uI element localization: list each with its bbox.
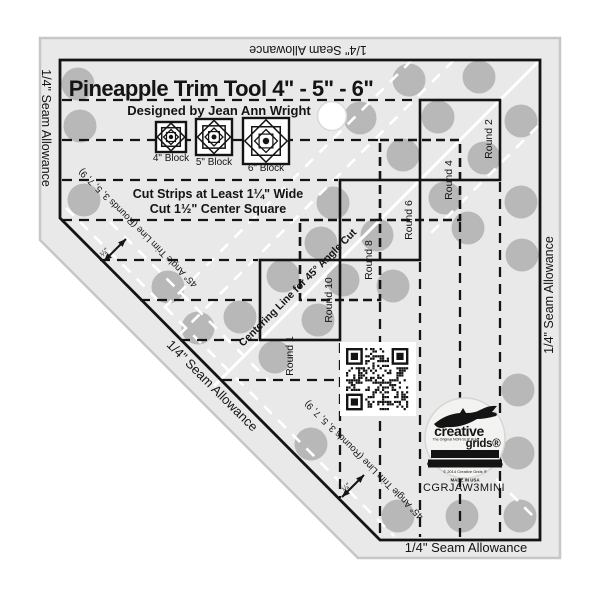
designer-credit: Designed by Jean Ann Wright bbox=[127, 103, 311, 118]
grip-dot bbox=[502, 374, 535, 407]
pineapple-block-icon bbox=[196, 119, 232, 155]
pineapple-trim-tool-ruler-photo: creative The Original NON-SLIP Ruler gri… bbox=[0, 0, 600, 600]
grip-dot bbox=[344, 102, 377, 135]
round-2-label: Round 2 bbox=[483, 119, 495, 159]
qr-code bbox=[340, 342, 416, 416]
grip-dot bbox=[505, 186, 538, 219]
block-label-6: 6" Block bbox=[248, 163, 285, 174]
grip-dot bbox=[64, 110, 97, 143]
instruction-line-2: Cut 1½" Center Square bbox=[150, 202, 287, 216]
grip-dot bbox=[463, 61, 496, 94]
logo-uk-line: UK - www.creativegrids.com bbox=[433, 452, 498, 458]
pineapple-block-icon bbox=[243, 118, 289, 164]
instruction-line-1: Cut Strips at Least 1¼" Wide bbox=[133, 187, 303, 201]
grip-dot bbox=[295, 428, 328, 461]
round-10-label: Round 10 bbox=[323, 277, 335, 323]
round-1-label: Round 1 bbox=[284, 336, 296, 376]
grip-dot bbox=[506, 239, 539, 272]
block-label-4: 4" Block bbox=[153, 153, 190, 164]
block-label-5: 5" Block bbox=[196, 157, 233, 168]
seam-allowance-bottom: 1/4" Seam Allowance bbox=[405, 540, 527, 555]
seam-allowance-right: 1/4" Seam Allowance bbox=[542, 236, 556, 354]
grip-dot bbox=[502, 437, 535, 470]
logo-copyright: © 2014 Creative Grids ® bbox=[443, 469, 487, 474]
grip-dot bbox=[387, 139, 420, 172]
grip-dot bbox=[446, 500, 479, 533]
seam-allowance-top: 1/4" Seam Allowance bbox=[249, 43, 367, 57]
grip-dot bbox=[393, 64, 426, 97]
grip-dot bbox=[422, 101, 455, 134]
seam-allowance-left: 1/4" Seam Allowance bbox=[39, 69, 53, 187]
round-6-label: Round 6 bbox=[403, 200, 415, 240]
grip-dot bbox=[377, 270, 410, 303]
grip-dot bbox=[452, 212, 485, 245]
hanging-hole bbox=[318, 102, 347, 131]
sku-code: CGRJAW3MINI bbox=[423, 482, 505, 494]
round-4-label: Round 4 bbox=[443, 160, 455, 200]
round-8-label: Round 8 bbox=[363, 240, 375, 280]
grip-dot bbox=[504, 500, 537, 533]
product-title: Pineapple Trim Tool 4" - 5" - 6" bbox=[69, 76, 374, 101]
logo-brand-bottom: grids® bbox=[466, 438, 502, 450]
logo-usa-line: USA - www.creativegridsusa.com bbox=[427, 462, 503, 468]
pineapple-block-icon bbox=[156, 122, 186, 152]
